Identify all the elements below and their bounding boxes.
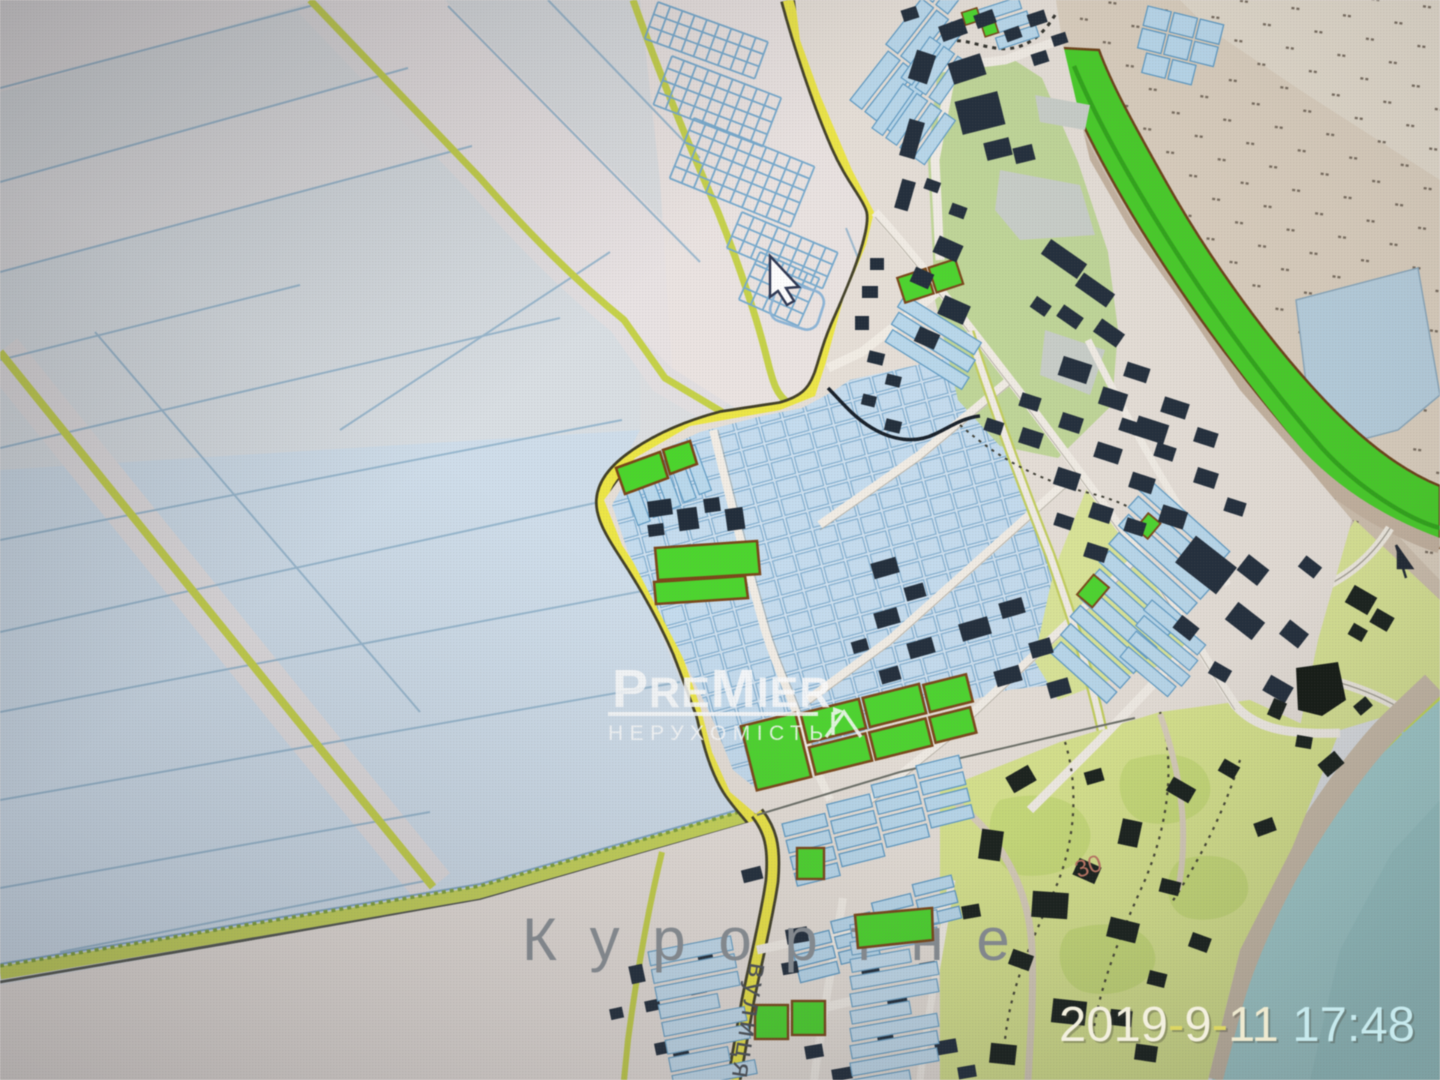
svg-text:2019-9-11 17:48: 2019-9-11 17:48 (1059, 998, 1415, 1052)
